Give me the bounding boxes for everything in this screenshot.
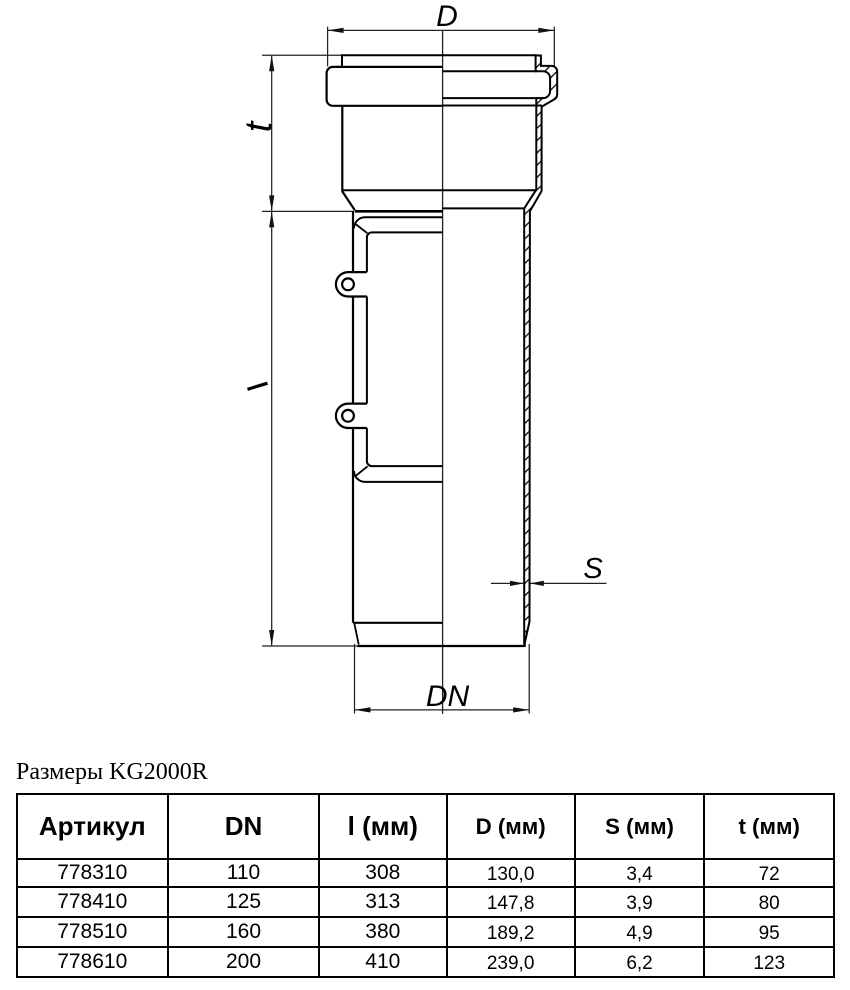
svg-text:DN: DN [426, 680, 470, 713]
svg-text:S: S [583, 553, 603, 585]
svg-text:D: D [436, 0, 458, 33]
svg-text:t: t [238, 120, 280, 132]
